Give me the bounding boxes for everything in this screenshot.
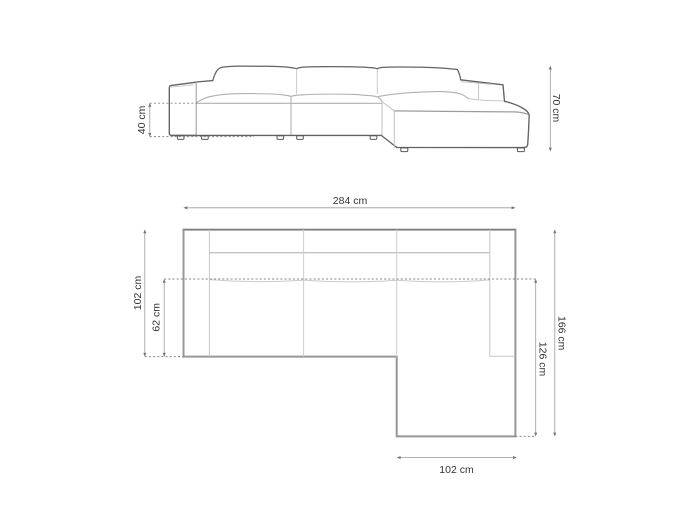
svg-text:166 cm: 166 cm (556, 316, 568, 351)
svg-text:284 cm: 284 cm (333, 195, 368, 207)
svg-text:102 cm: 102 cm (439, 464, 474, 476)
svg-text:70 cm: 70 cm (550, 94, 562, 123)
svg-text:126 cm: 126 cm (537, 342, 549, 377)
svg-text:40 cm: 40 cm (136, 105, 148, 134)
svg-text:102 cm: 102 cm (132, 276, 144, 311)
svg-text:62 cm: 62 cm (150, 303, 162, 332)
